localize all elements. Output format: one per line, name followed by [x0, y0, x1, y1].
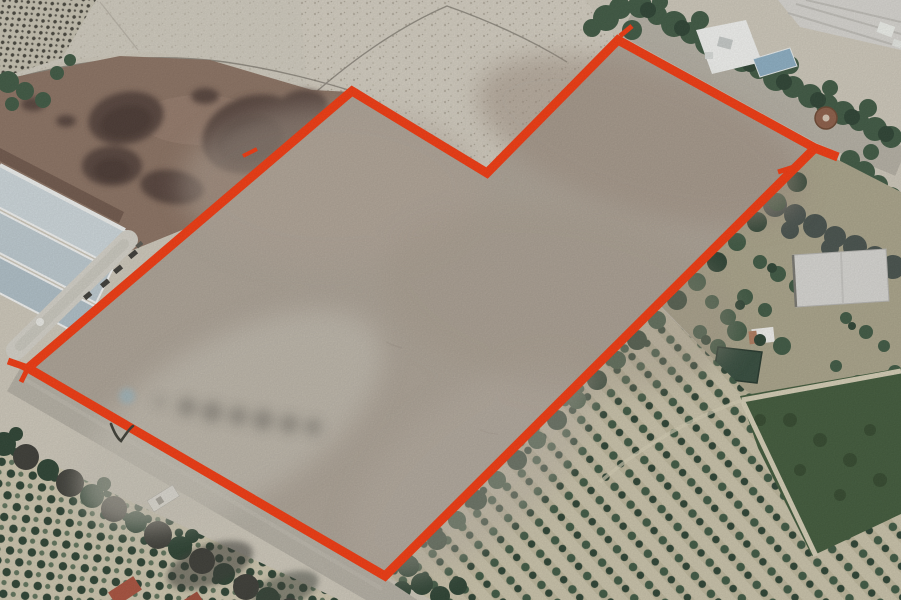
- satellite-image: [0, 0, 901, 600]
- map-canvas[interactable]: [0, 0, 901, 600]
- grain-light: [0, 0, 901, 600]
